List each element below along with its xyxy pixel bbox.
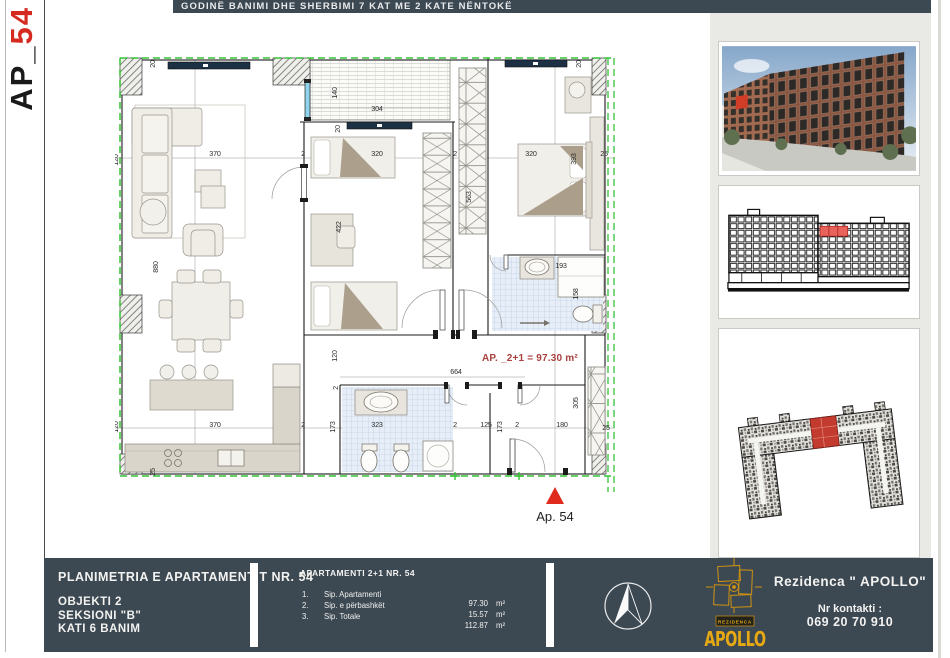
shower <box>423 441 453 471</box>
ground-line <box>728 289 909 292</box>
row-number: 3. <box>302 612 324 623</box>
dimension-label: 2 <box>331 386 340 390</box>
logo-word: APOLLO <box>704 629 765 652</box>
row-unit: m² <box>496 599 518 610</box>
dimension-label: 2 <box>515 420 519 429</box>
kids-bedroom-furniture <box>311 137 397 330</box>
key-plan-drawing <box>718 328 920 558</box>
divider <box>250 563 258 647</box>
residence-name: Rezidenca " APOLLO" <box>766 574 934 589</box>
dimension-label: 370 <box>209 420 221 429</box>
entry-door-leaf <box>510 439 515 472</box>
living-room-furniture <box>132 105 245 410</box>
area-table: 1. Sip. Apartamenti 2. Sip. e përbashkët… <box>302 590 444 622</box>
dimension-label: 20 <box>148 60 157 68</box>
toilet <box>573 306 593 322</box>
table-row: 2. Sip. e përbashkët <box>302 601 444 612</box>
north-arrow <box>602 580 654 637</box>
dimension-label: 393 <box>569 153 578 165</box>
dimension-label: 320 <box>371 149 383 158</box>
table-row: 3. Sip. Totale <box>302 612 444 623</box>
bathroom-sink <box>364 392 398 412</box>
dimension-label: 320 <box>525 149 537 158</box>
kitchen-island <box>150 380 233 410</box>
apollo-logo: REZIDENCA APOLLO <box>704 558 766 657</box>
sheet-code-prefix: AP_ <box>4 44 39 110</box>
dining-table <box>172 282 230 340</box>
contact-phone: 069 20 70 910 <box>766 615 934 629</box>
brand-info: Rezidenca " APOLLO" Nr kontakti : 069 20… <box>766 574 934 629</box>
logo-banner-text: REZIDENCA <box>718 619 752 624</box>
section-line: SEKSIONI "B" <box>58 610 141 624</box>
row-value: 112.87 <box>442 621 488 632</box>
drawing-sheet: AP_54 GODINË BANIMI DHE SHERBIMI 7 KAT M… <box>0 0 950 658</box>
toilet <box>361 450 377 472</box>
sidebar <box>710 13 931 558</box>
dimension-label: 664 <box>450 367 462 376</box>
row-label: Sip. Apartamenti <box>324 590 444 601</box>
dimension-label: 2 <box>453 420 457 429</box>
page-right-edge <box>938 0 941 658</box>
shaft <box>588 367 605 455</box>
north-arrow-icon <box>602 580 654 632</box>
row-label: Sip. e përbashkët <box>324 601 444 612</box>
row-number: 1. <box>302 590 324 601</box>
area-units: m² m² m² <box>496 599 518 631</box>
elevation-illustration <box>722 189 916 315</box>
apartment-header: APARTAMENTI 2+1 NR. 54 <box>300 568 415 578</box>
dimension-label: 193 <box>555 261 567 270</box>
sheet-code-number: 54 <box>4 6 39 44</box>
dimension-label: 323 <box>371 420 383 429</box>
area-values: 97.30 15.57 112.87 <box>442 599 488 631</box>
header-bar: GODINË BANIMI DHE SHERBIMI 7 KAT ME 2 KA… <box>173 0 931 13</box>
floor-plan: AP. _2+1 = 97.30 m² Ap. 54 2014030420201… <box>115 20 700 555</box>
entrance-marker-triangle <box>546 487 564 504</box>
ensuite-bathroom <box>492 257 604 331</box>
main-bathroom <box>342 387 453 472</box>
dimension-label: 173 <box>495 421 504 433</box>
bathroom-sink <box>525 259 549 275</box>
object-info: OBJEKTI 2 SEKSIONI "B" KATI 6 BANIM <box>58 596 141 637</box>
row-value: 97.30 <box>442 599 488 610</box>
dimension-label: 158 <box>571 288 580 300</box>
dimension-label: 140 <box>330 87 339 99</box>
entrance-marker-label: Ap. 54 <box>536 509 574 524</box>
object-line: OBJEKTI 2 <box>58 596 141 610</box>
coffee-table <box>201 186 225 208</box>
highlighted-apartment-windows <box>820 226 848 236</box>
bidet <box>393 450 409 472</box>
row-unit: m² <box>496 621 518 632</box>
dimension-label: 120 <box>115 421 120 433</box>
dimension-label: 20 <box>574 60 583 68</box>
dimension-label: 880 <box>151 261 160 273</box>
keyplan-illustration <box>722 332 916 554</box>
render-illustration <box>722 45 916 172</box>
living-window <box>168 62 250 69</box>
margin-divider-line <box>44 0 45 558</box>
sheet-code-vertical: AP_54 <box>2 6 44 116</box>
dimension-label: 180 <box>556 420 568 429</box>
side-window <box>305 82 310 118</box>
armchair <box>183 224 223 256</box>
building-render-photo <box>718 41 920 176</box>
dimension-label: 2 <box>453 149 457 158</box>
dimension-label: 120 <box>330 350 339 362</box>
highlighted-apartment-unit <box>810 416 839 449</box>
row-unit: m² <box>496 610 518 621</box>
plan-title: PLANIMETRIA E APARTAMENTIT NR. 54 <box>58 570 313 584</box>
title-block: PLANIMETRIA E APARTAMENTIT NR. 54 OBJEKT… <box>44 558 933 652</box>
table-row: 1. Sip. Apartamenti <box>302 590 444 601</box>
dimension-label: 2 <box>301 420 305 429</box>
highlighted-apartment-windows <box>736 95 748 110</box>
row-label: Sip. Totale <box>324 612 444 623</box>
divider <box>546 563 554 647</box>
dimension-label: 304 <box>371 104 383 113</box>
row-value: 15.57 <box>442 610 488 621</box>
dimension-label: 20 <box>333 125 342 133</box>
building-elevation-drawing <box>718 185 920 319</box>
dimension-label: 25 <box>602 423 610 432</box>
side-table <box>140 199 166 225</box>
row-number: 2. <box>302 601 324 612</box>
floor-line: KATI 6 BANIM <box>58 623 141 637</box>
apollo-logo-icon: REZIDENCA APOLLO <box>704 558 766 652</box>
dimension-label: 173 <box>328 421 337 433</box>
floor-plan-svg: AP. _2+1 = 97.30 m² Ap. 54 2014030420201… <box>115 20 700 555</box>
dimension-label: 305 <box>571 397 580 409</box>
dimension-label: 120 <box>115 154 120 166</box>
contact-label: Nr kontakti : <box>766 603 934 615</box>
elevation-left-wing <box>729 215 818 272</box>
apartment-area-note: AP. _2+1 = 97.30 m² <box>482 353 578 364</box>
dimension-label: 370 <box>209 149 221 158</box>
dimension-label: 422 <box>334 221 343 233</box>
master-bedroom-furniture <box>518 77 604 250</box>
dimension-label: 2 <box>301 149 305 158</box>
dimension-label: 25 <box>148 468 157 476</box>
dimension-label: 25 <box>600 149 608 158</box>
dimension-label: 125 <box>480 420 492 429</box>
dimension-label: 563 <box>464 191 473 203</box>
